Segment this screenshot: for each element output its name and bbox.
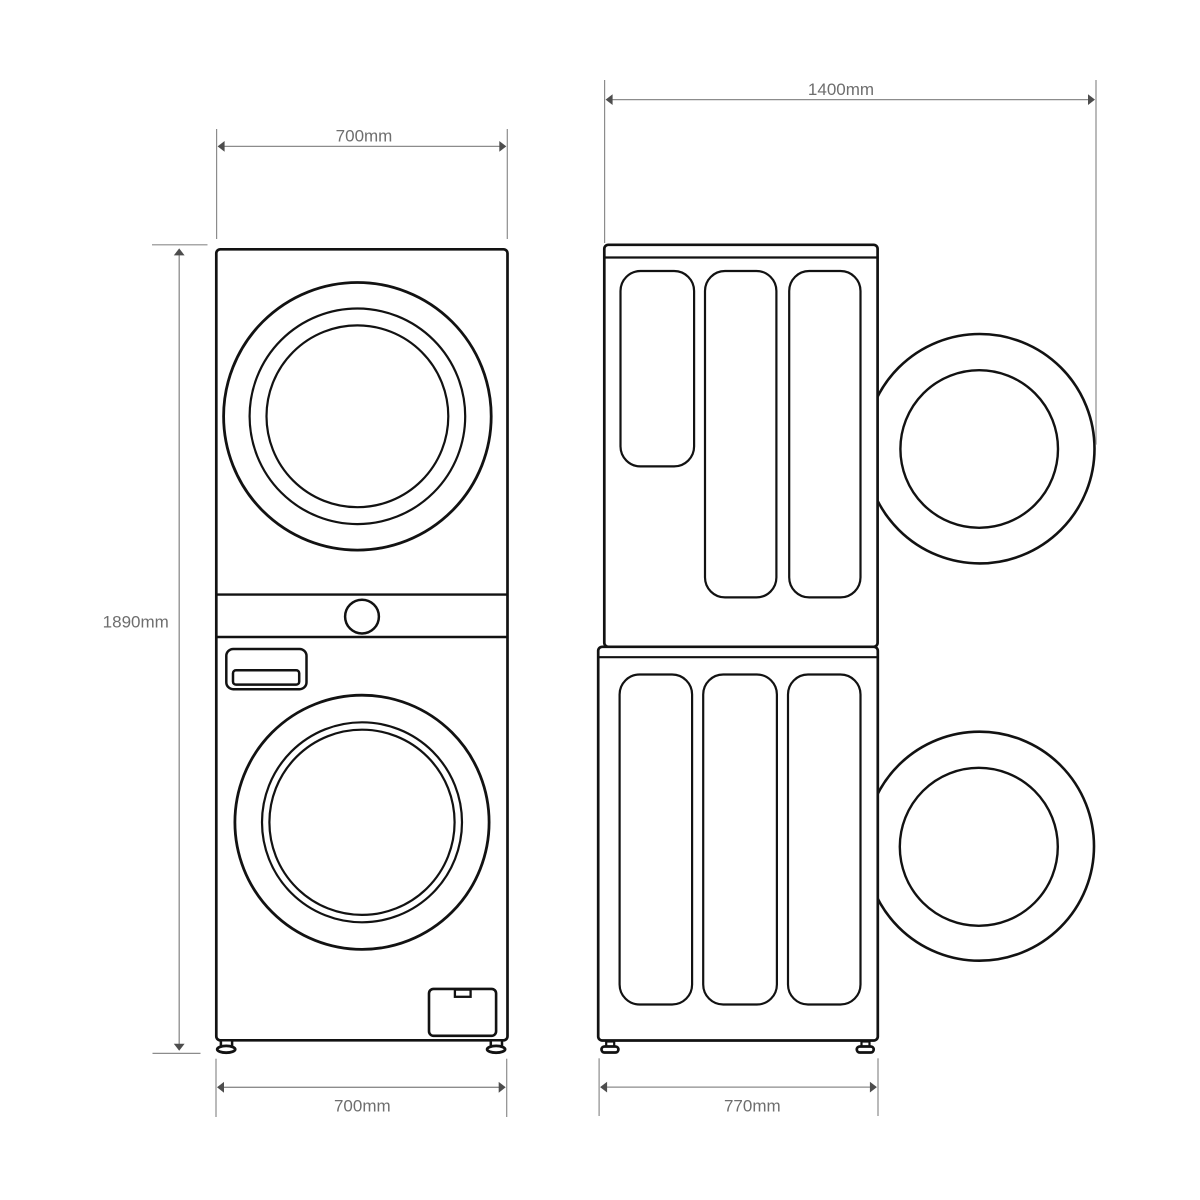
svg-text:700mm: 700mm [334,1097,391,1116]
svg-text:1400mm: 1400mm [808,80,874,99]
svg-text:770mm: 770mm [724,1096,781,1115]
svg-text:1890mm: 1890mm [103,612,169,631]
svg-text:700mm: 700mm [336,127,393,146]
